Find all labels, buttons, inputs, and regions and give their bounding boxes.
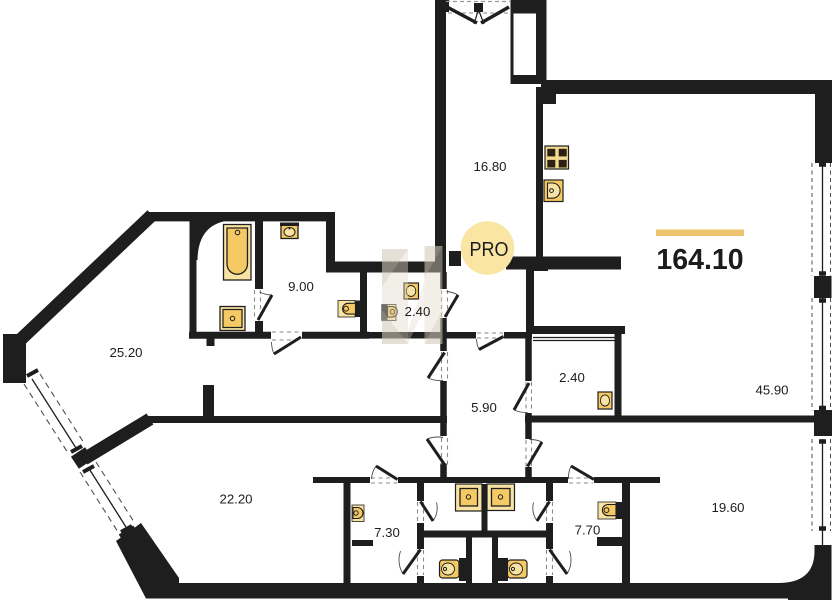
svg-text:2.40: 2.40: [559, 370, 585, 385]
svg-text:45.90: 45.90: [755, 383, 788, 398]
svg-text:22.20: 22.20: [219, 492, 252, 507]
svg-text:7.70: 7.70: [575, 523, 601, 538]
svg-text:7.30: 7.30: [374, 525, 400, 540]
svg-text:19.60: 19.60: [711, 500, 744, 515]
svg-text:2.40: 2.40: [405, 304, 431, 319]
svg-text:5.90: 5.90: [471, 400, 497, 415]
svg-text:164.10: 164.10: [656, 244, 743, 276]
svg-text:PRO: PRO: [470, 239, 509, 261]
svg-text:9.00: 9.00: [288, 279, 314, 294]
svg-text:16.80: 16.80: [473, 159, 506, 174]
svg-text:25.20: 25.20: [109, 345, 142, 360]
